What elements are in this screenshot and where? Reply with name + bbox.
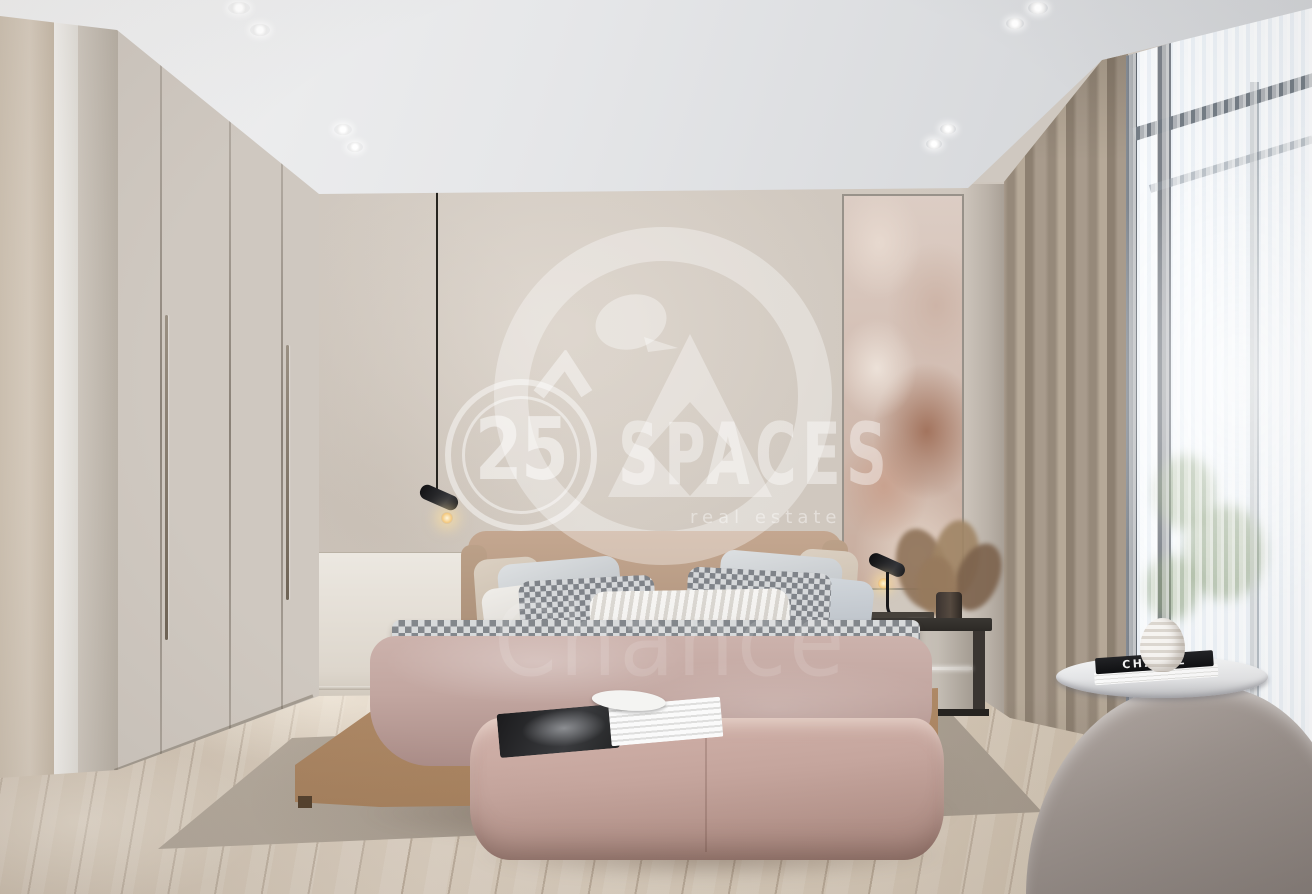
- watermark-brand-text: SPACES: [618, 412, 892, 498]
- wardrobe-door-seam: [160, 63, 162, 755]
- ceiling-spotlight: [1028, 2, 1048, 14]
- wardrobe-door-seam: [229, 119, 231, 729]
- bedroom-photo: CHANEL 25 SPACES real estate Chance: [0, 0, 1312, 894]
- door-frame-trim: [54, 0, 78, 894]
- bed-leg: [298, 796, 312, 808]
- ceiling-spotlight: [940, 124, 956, 134]
- ceiling-spotlight: [347, 142, 363, 152]
- adjacent-door: [0, 0, 54, 894]
- door-shadow-wall: [78, 0, 118, 894]
- watermark-badge-number: 25: [460, 407, 582, 493]
- watermark-tagline-text: real estate: [690, 507, 842, 528]
- ceiling-spotlight: [250, 24, 270, 36]
- pendant-lamp-light: [441, 512, 453, 524]
- pendant-cable: [436, 174, 438, 492]
- ceiling-spotlight: [228, 2, 250, 14]
- magazine-left-page: [497, 704, 620, 758]
- wardrobe-handle: [165, 315, 168, 640]
- ceiling-spotlight: [1006, 18, 1024, 29]
- wardrobe-door-seam: [281, 162, 283, 709]
- ceiling-spotlight: [926, 139, 942, 149]
- watermark-overlay-text: Chance: [494, 588, 847, 693]
- ottoman-seam: [705, 726, 707, 852]
- ceiling-spotlight: [334, 124, 352, 135]
- wardrobe-handle: [286, 345, 289, 600]
- ribbed-vase: [1140, 618, 1185, 672]
